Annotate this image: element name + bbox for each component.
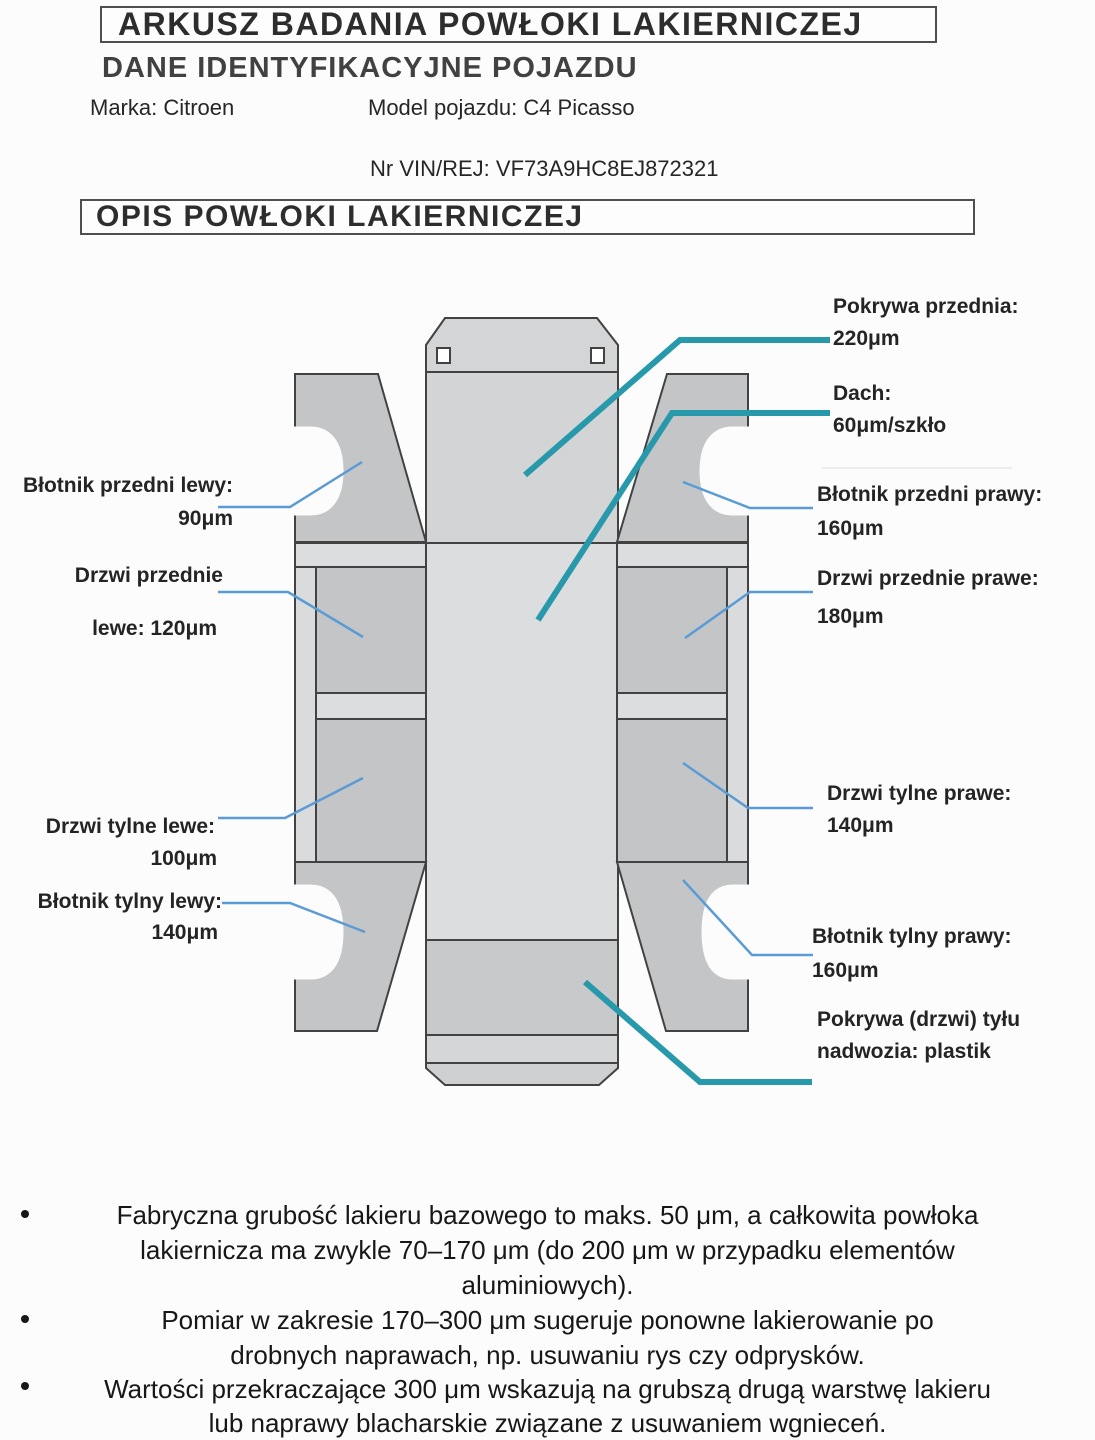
- roof-panel: [426, 543, 618, 940]
- rear-right-door-shape: [617, 719, 727, 862]
- label-rear-left-fender-value: 140μm: [151, 921, 218, 945]
- label-rear-left-door-value: 100μm: [150, 847, 217, 871]
- note-repaint-range-line2: drobnych naprawach, np. usuwaniu rys czy…: [30, 1340, 1065, 1370]
- front-left-door-shape: [316, 567, 426, 693]
- tailgate-panel: [426, 1063, 618, 1085]
- label-roof-value: 60μm/szkło: [833, 414, 946, 438]
- right-b-pillar-strip: [617, 693, 727, 719]
- label-rear-left-door-title: Drzwi tylne lewe:: [46, 815, 215, 839]
- label-hood-title: Pokrywa przednia:: [833, 295, 1019, 319]
- label-front-right-door-value: 180μm: [817, 605, 884, 629]
- left-sill-band: [295, 543, 426, 567]
- right-rocker-strip: [727, 567, 748, 862]
- label-tailgate-value: nadwozia: plastik: [817, 1040, 991, 1064]
- note-factory-thickness-line1: Fabryczna grubość lakieru bazowego to ma…: [30, 1200, 1065, 1230]
- sheet-title: ARKUSZ BADANIA POWŁOKI LAKIERNICZEJ: [102, 6, 863, 43]
- vin-field: Nr VIN/REJ: VF73A9HC8EJ872321: [370, 156, 719, 182]
- rear-left-door-shape: [316, 719, 426, 862]
- bullet-icon: [21, 1382, 29, 1390]
- label-rear-right-door-value: 140μm: [827, 814, 894, 838]
- sheet-title-box: ARKUSZ BADANIA POWŁOKI LAKIERNICZEJ: [100, 6, 937, 43]
- paint-inspection-sheet: ARKUSZ BADANIA POWŁOKI LAKIERNICZEJ DANE…: [0, 0, 1095, 1440]
- label-front-left-door-value: lewe: 120μm: [92, 617, 217, 641]
- front-right-door-shape: [617, 567, 727, 693]
- label-front-right-door-title: Drzwi przednie prawe:: [817, 567, 1039, 591]
- coating-title: OPIS POWŁOKI LAKIERNICZEJ: [82, 200, 584, 234]
- vehicle-data-heading: DANE IDENTYFIKACYJNE POJAZDU: [102, 52, 638, 85]
- label-front-left-door-title: Drzwi przednie: [75, 564, 223, 588]
- front-left-wheel-cutout: [289, 428, 342, 514]
- label-rear-left-fender-title: Błotnik tylny lewy:: [38, 890, 222, 914]
- label-front-right-fender-title: Błotnik przedni prawy:: [817, 483, 1042, 507]
- hood-panel: [426, 318, 618, 372]
- label-tailgate-title: Pokrywa (drzwi) tyłu: [817, 1008, 1020, 1032]
- rear-right-wheel-cutout: [703, 886, 754, 978]
- right-sill-band: [617, 543, 748, 567]
- label-front-left-fender-value: 90μm: [178, 507, 233, 531]
- label-hood-value: 220μm: [833, 327, 900, 351]
- bullet-icon: [21, 1315, 29, 1323]
- windshield-panel: [426, 372, 618, 543]
- note-repaint-range-line1: Pomiar w zakresie 170–300 μm sugeruje po…: [30, 1305, 1065, 1335]
- left-b-pillar-strip: [316, 693, 426, 719]
- note-factory-thickness-line2: lakiernicza ma zwykle 70–170 μm (do 200 …: [30, 1235, 1065, 1265]
- note-factory-thickness-line3: aluminiowych).: [30, 1270, 1065, 1300]
- front-right-wheel-cutout: [701, 428, 754, 514]
- note-over-300-line1: Wartości przekraczające 300 μm wskazują …: [30, 1374, 1065, 1404]
- label-rear-right-fender-value: 160μm: [812, 959, 879, 983]
- label-roof-title: Dach:: [833, 382, 891, 406]
- brand-field: Marka: Citroen: [90, 95, 234, 121]
- label-front-left-fender-title: Błotnik przedni lewy:: [23, 474, 233, 498]
- left-rocker-strip: [295, 567, 316, 862]
- coating-title-box: OPIS POWŁOKI LAKIERNICZEJ: [80, 199, 975, 235]
- label-rear-right-door-title: Drzwi tylne prawe:: [827, 782, 1011, 806]
- note-over-300-line2: lub naprawy blacharskie związane z usuwa…: [30, 1408, 1065, 1438]
- rear-left-wheel-cutout: [289, 886, 342, 978]
- hood-hinge-right-icon: [591, 348, 604, 363]
- rear-deck-panel: [426, 1035, 618, 1063]
- label-rear-right-fender-title: Błotnik tylny prawy:: [812, 925, 1012, 949]
- hood-hinge-left-icon: [437, 348, 450, 363]
- model-field: Model pojazdu: C4 Picasso: [368, 95, 635, 121]
- car-unfolded-diagram: [0, 280, 1095, 1100]
- bullet-icon: [21, 1210, 29, 1218]
- label-front-right-fender-value: 160μm: [817, 517, 884, 541]
